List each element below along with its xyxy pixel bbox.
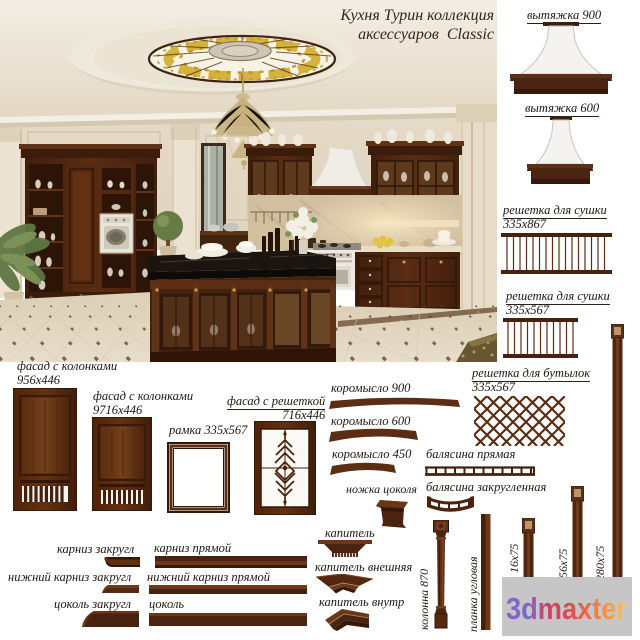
svg-text:3dmaxter: 3dmaxter: [506, 591, 627, 626]
